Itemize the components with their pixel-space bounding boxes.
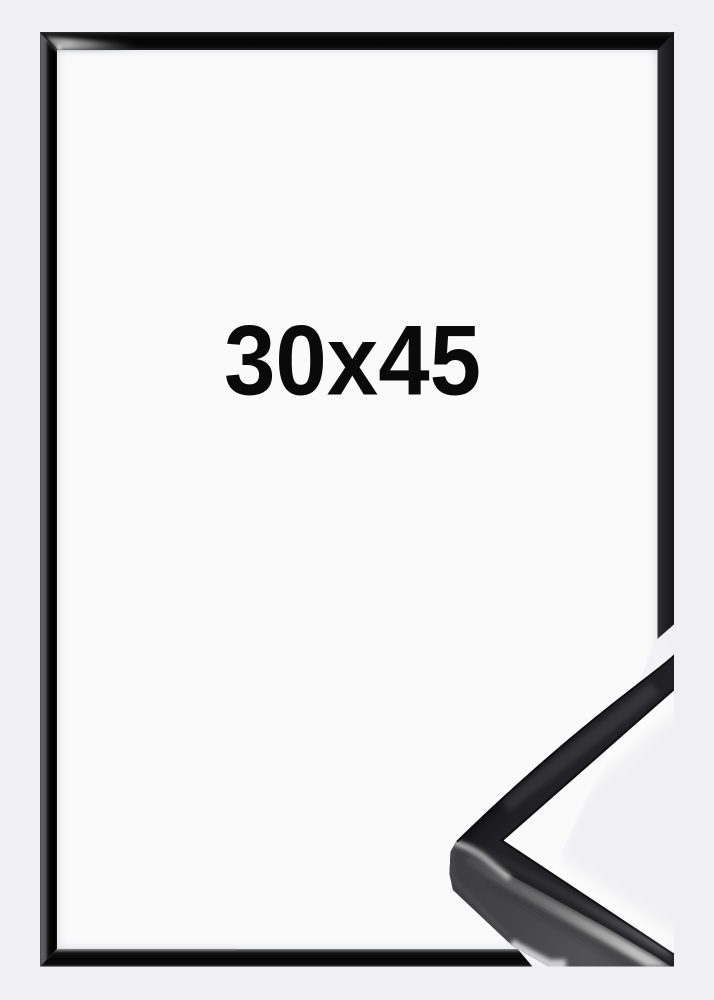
svg-text:30x45: 30x45 [224,305,481,416]
